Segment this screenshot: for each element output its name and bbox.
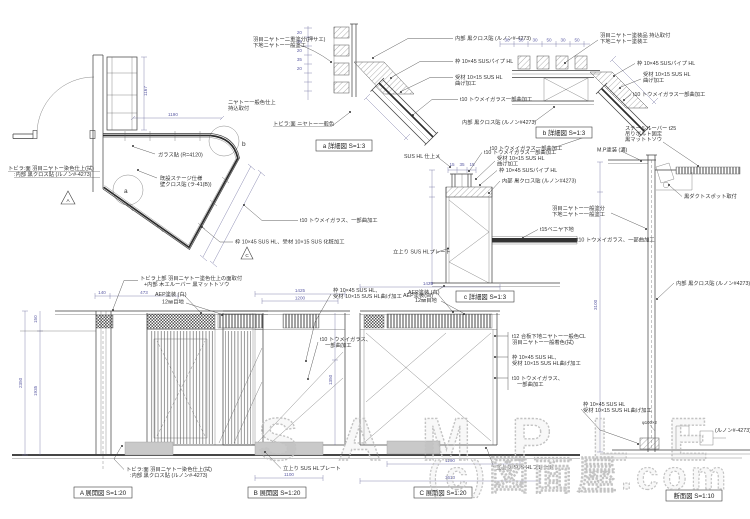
watermark: SAMPLE (c)図面屋.com xyxy=(258,406,748,498)
label-e3: 12㎜目地 xyxy=(162,298,184,306)
label-dc-glass: t10 トウメイガラス一部曲加工 xyxy=(484,148,557,156)
label-db-louver-3: 黒マットトソウ xyxy=(625,135,662,143)
plan-shaft: 1167 xyxy=(107,57,148,130)
dim-chain-a0: 20 xyxy=(297,30,303,35)
dim-150: 150 xyxy=(33,315,38,323)
label-e8-b: 羽目ニヤトー一般着色(拭) xyxy=(512,338,574,346)
label-db-top-1: 羽目ニヤトー塗装品 持込取付 xyxy=(600,31,671,39)
label-plan-stage-1: 既設ステージ仕様 xyxy=(160,174,203,182)
dim-3100: 3100 xyxy=(593,299,598,310)
marker-a-label: a xyxy=(124,188,128,195)
dim-1425-b: 1425 xyxy=(295,288,306,293)
detail-c-dims: 15 35 15 xyxy=(429,162,476,285)
dim-chain-b5: 50 xyxy=(574,38,580,43)
detail-marker-a: a xyxy=(113,175,143,205)
dim-chain-c2: 15 xyxy=(469,162,475,167)
label-db-mp: M.P塗装 (濃) xyxy=(597,146,628,154)
label-plan-frame: 枠 10×45 SUS HL、受材 10×15 SUS 化粧加工 xyxy=(235,238,345,246)
detail-b-title: b 詳細図 S=1:3 xyxy=(536,127,592,138)
dim-473: 473 xyxy=(140,290,148,295)
label-db-uke-1: 受材 10×15 SUS HL xyxy=(643,70,691,78)
detail-a-structure xyxy=(334,24,438,146)
label-sec-nyatoh-1: 羽目ニヤトー一般塗分 xyxy=(552,204,606,212)
label-da-top-2: 下地ニヤトー一般塗工 xyxy=(253,41,307,49)
dim-chain-c1: 35 xyxy=(459,162,465,167)
label-plan-stage-2: 壁クロス貼 (ラ-41(B)) xyxy=(160,180,212,188)
label-da-frame: 枠 10×45 SUSパイプ HL xyxy=(455,57,513,65)
label-e10-b: 一部曲加工 xyxy=(517,380,544,388)
watermark-site-text: (c)図面屋.com xyxy=(428,454,730,498)
label-sec-cloth: 内部 黒クロス貼 (ルノン#4273) xyxy=(676,279,750,287)
detail-c-labels: t10 トウメイガラス一部曲加工 受材 10×15 SUS HL 曲げ加工 枠 … xyxy=(393,148,655,299)
dim-1425-c: 1425 xyxy=(423,281,434,286)
dim-chain-b4: 30 xyxy=(560,38,566,43)
label-dc-cloth: 内部 黒クロス貼 (ルノン#4273) xyxy=(502,177,576,185)
label-plan-door-1: トビラ:面 羽目ニヤトー染色仕上(拭) xyxy=(8,164,94,172)
title-detail-a: a 詳細図 S=1:3 xyxy=(323,141,366,150)
label-e7-a: t10 トウメイガラス、 xyxy=(320,335,371,343)
label-dc-veneer: t15ベニヤ下地 xyxy=(540,225,575,233)
label-da-uke-2: 曲げ加工 xyxy=(455,79,477,87)
detail-c-title: c 詳細図 S=1:3 xyxy=(456,291,514,302)
title-detail-c: c 詳細図 S=1:3 xyxy=(464,292,507,301)
label-sec-nyatoh-2: 下地ニヤトー一般塗工 xyxy=(552,210,606,218)
label-e10-a: t10 トウメイガラス、 xyxy=(512,374,563,382)
label-e1-b: +内部 木エルーバー 黒マットトソウ xyxy=(144,280,229,288)
label-sec-spot: 黒ダクトスポット取付 xyxy=(684,192,738,200)
detail-c-view: 15 35 15 t10 トウメイガラス一部曲加工 受材 10×15 SU xyxy=(393,148,655,302)
label-da-top-1: 羽目ニヤトー二重塗分(押サエ) xyxy=(253,35,326,43)
label-db-cloth: 内部 黒クロス貼 (ルノン#4273) xyxy=(462,118,536,126)
dim-140: 140 xyxy=(98,290,106,295)
plan-labels: ガラス貼 (R=4120) 既設ステージ仕様 壁クロス貼 (ラ-41(B)) t… xyxy=(8,145,378,246)
drawing-sheet: 1167 1190 a b C xyxy=(0,0,750,519)
title-elev-a: A 展開図 S=1:20 xyxy=(80,489,127,497)
label-da-glass: t10 トウメイガラス一部曲加工 xyxy=(460,95,533,103)
label-plan-glass: t10 トウメイガラス、一部曲加工 xyxy=(300,216,378,224)
label-e2: AEP塗装 (白) xyxy=(155,290,187,298)
label-db-top-2: 下地ニヤトー塗装工 xyxy=(600,37,648,45)
dim-2350: 2350 xyxy=(18,377,23,388)
dim-chain-b3: 50 xyxy=(546,38,552,43)
label-e9-a: 枠 10×45 SUS HL、 xyxy=(512,353,560,361)
label-dc-plate: 立上り SUS HLプレート xyxy=(393,248,451,256)
label-dc-frame: 枠 10×45 SUSパイプ HL xyxy=(499,166,557,174)
label-plan-glass-r: ガラス貼 (R=4120) xyxy=(158,151,203,159)
view-marker-a: A xyxy=(61,191,75,204)
plan-view: 1167 1190 a b C xyxy=(8,55,378,267)
label-db-glass: t10 トウメイガラス一部曲加工 xyxy=(633,90,706,98)
view-marker-c: C xyxy=(241,247,253,259)
label-db-frame: 枠 10×45 SUSパイプ HL xyxy=(637,59,695,67)
label-e12-b: :内部 黒クロス貼 (ルノン#-4273) xyxy=(130,471,208,479)
label-e9-b: 受材 10×15 SUS HL曲げ加工 xyxy=(512,359,581,367)
dim-1190: 1190 xyxy=(168,112,178,117)
title-elev-b: B 展開図 S=1:20 xyxy=(254,489,301,497)
dim-chain-b1: 50 xyxy=(518,38,524,43)
label-da-left-1: ニヤトー一般色仕上 xyxy=(228,98,276,106)
label-da-uke-1: 受材 10×15 SUS HL xyxy=(455,73,503,81)
label-db-uke-2: 曲げ加工 xyxy=(643,76,665,84)
label-dc-uke-2: 曲げ加工 xyxy=(497,160,519,168)
label-e5: AEP塗装 (白) xyxy=(408,288,440,296)
dim-1935: 1935 xyxy=(33,385,38,396)
door-swing-arc xyxy=(37,77,94,134)
label-e4-a: 枠 10×45 SUS HL、 xyxy=(333,286,381,294)
dim-chain-b2: 30 xyxy=(532,38,538,43)
detail-a-title: a 詳細図 S=1:3 xyxy=(316,140,372,151)
dim-chain-b0: 30 xyxy=(504,38,510,43)
dim-1167: 1167 xyxy=(143,86,148,96)
dim-chain-a4: 20 xyxy=(297,66,303,71)
label-da-left-2: 持込取付 xyxy=(228,104,250,112)
label-e6: 12㎜目地 xyxy=(415,296,437,304)
label-dc-glass-2: t10 トウメイガラス、一部曲加工 xyxy=(577,236,655,244)
label-e12-a: トビラ:面 羽目ニヤトー染色仕上(拭) xyxy=(126,465,212,473)
marker-b-label: b xyxy=(242,141,246,148)
dim-1200: 1200 xyxy=(295,296,306,301)
label-e1-a: トビラ上部 羽目ニヤトー塗色仕上の面取付 xyxy=(140,274,243,282)
title-detail-b: b 詳細図 S=1:3 xyxy=(543,128,586,137)
label-da-door: トビラ:面 ニヤトー一般色 xyxy=(273,120,335,128)
label-e7-b: 一部曲加工 xyxy=(325,341,352,349)
label-e4-b: 受材 10×15 SUS HL曲げ加工 xyxy=(333,292,402,300)
dim-chain-a3: 35 xyxy=(297,57,303,62)
label-e8-a: t12 合板下地ニヤトー一般色CL xyxy=(512,332,586,340)
dim-1350: 1350 xyxy=(328,374,333,385)
detail-a-view: 20 35 20 35 20 羽目ニヤトー二重塗分(押サエ) 下地ニヤトー一般塗… xyxy=(228,24,533,151)
label-dc-sus: SUS HL 仕上メ xyxy=(404,152,440,160)
